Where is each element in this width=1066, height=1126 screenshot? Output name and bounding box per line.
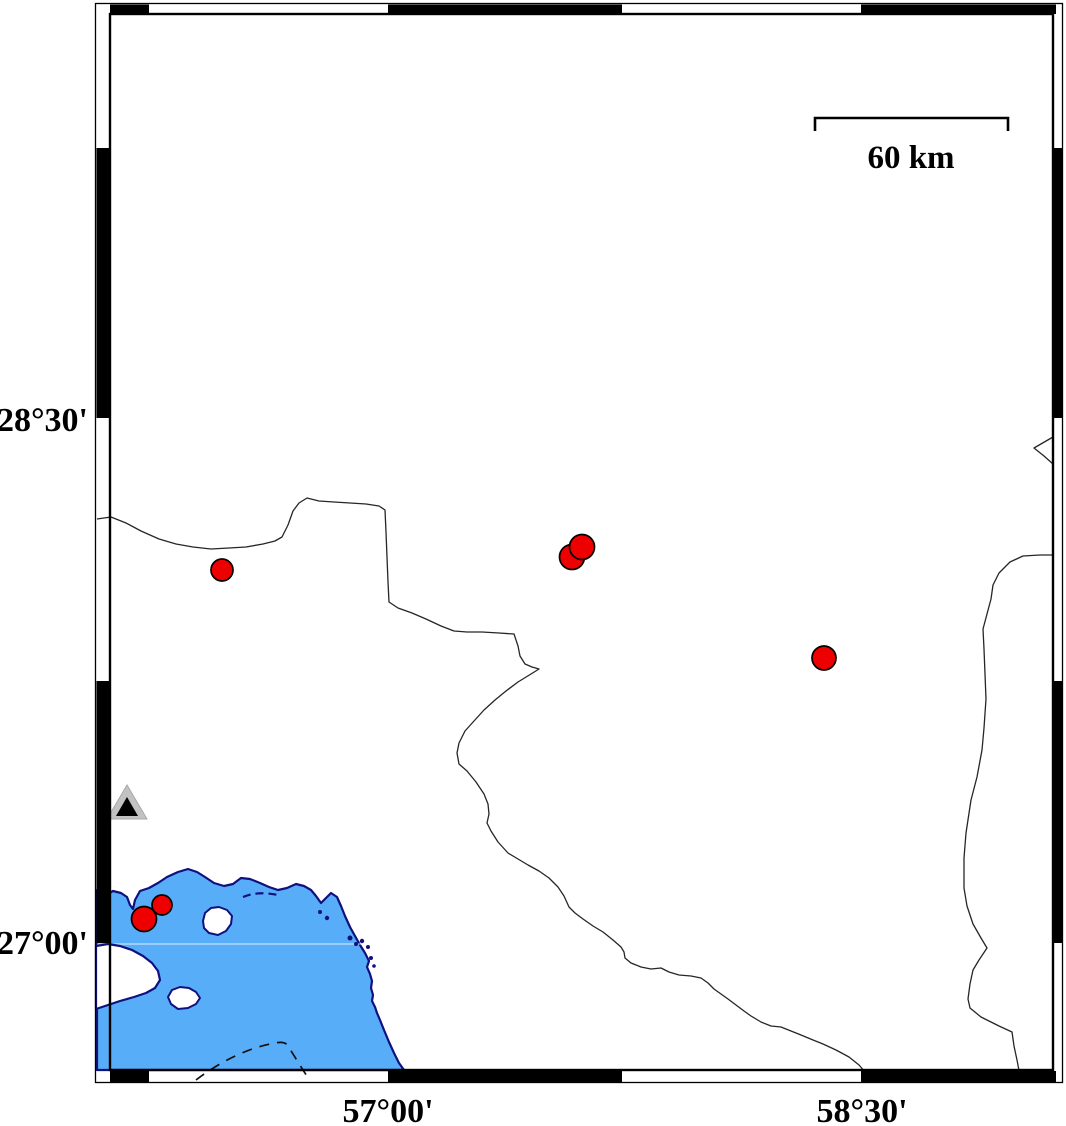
boundary-line-east	[964, 555, 1053, 1081]
islet	[354, 942, 358, 946]
islet	[372, 964, 376, 968]
lat-label-2700: 27°00'	[0, 925, 88, 962]
earthquake-marker	[211, 559, 233, 581]
islet	[369, 956, 373, 960]
lon-label-5700: 57°00'	[342, 1093, 433, 1126]
frame-segment	[110, 1071, 149, 1082]
earthquake-marker	[812, 646, 836, 670]
lat-label-2830: 28°30'	[0, 402, 88, 439]
earthquake-marker	[570, 535, 595, 560]
islet	[325, 916, 329, 920]
frame-segment	[388, 1071, 622, 1082]
frame-segment	[110, 5, 149, 15]
scale-bar-bracket	[815, 118, 1008, 131]
frame-segment	[861, 1071, 1056, 1082]
frame-segment	[1054, 681, 1063, 943]
boundary-wedge	[1034, 437, 1053, 464]
islet	[366, 945, 370, 949]
earthquake-markers-group	[132, 535, 837, 932]
frame-segment	[97, 148, 110, 418]
scale-bar: 60 km	[815, 118, 1008, 176]
earthquake-marker	[132, 907, 157, 932]
frame-segment	[1054, 148, 1063, 418]
station-marker	[107, 785, 147, 819]
frame-segment	[861, 5, 1056, 15]
map-page: 60 km 28°30' 27°00' 57°00' 58°30'	[0, 0, 1066, 1126]
map-canvas: 60 km 28°30' 27°00' 57°00' 58°30'	[0, 0, 1066, 1126]
islet	[348, 936, 353, 941]
islet	[360, 939, 364, 943]
lon-label-5830: 58°30'	[816, 1093, 907, 1126]
frame-segment	[388, 5, 622, 15]
islet	[318, 910, 322, 914]
frame-segment	[97, 681, 110, 943]
water-layer	[96, 869, 406, 1080]
scale-bar-label: 60 km	[867, 140, 954, 176]
